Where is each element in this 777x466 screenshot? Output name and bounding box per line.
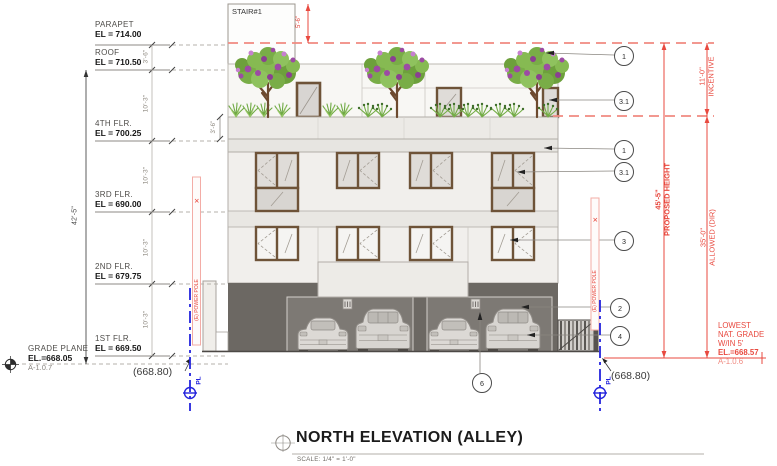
property-line-label-left: PL — [196, 351, 203, 411]
level-label-3rd: 3RD FLR. EL = 690.00 — [95, 190, 141, 209]
grade-plane-label: GRADE PLANE EL.=668.05 A-1.0.7 — [28, 344, 88, 372]
spot-elevation-right: (668.80) — [611, 370, 650, 382]
grade-plane-marker — [2, 356, 19, 373]
level-label-roof: ROOF EL = 710.50 — [95, 48, 141, 67]
callout-3-1: 3.1 — [614, 91, 634, 111]
dim-floor: 10'-3" — [143, 74, 150, 134]
dim-floor: 10'-3" — [143, 290, 150, 350]
overall-dim-text: 42'-5" — [72, 186, 79, 246]
elevation-drawing: PARAPET EL = 714.00 ROOF EL = 710.50 4TH… — [0, 0, 777, 466]
proposed-height-text: 45'-5" PROPOSED HEIGHT — [655, 155, 672, 245]
stair-label: STAIR#1 — [232, 7, 262, 16]
dim-floor: 10'-3" — [143, 218, 150, 278]
spot-elevation-left: (668.80) — [133, 366, 172, 378]
stair-dim-text: 5'-6" — [296, 0, 302, 52]
callout-6: 6 — [472, 373, 492, 393]
fourth-floor-fascia — [228, 139, 558, 152]
terrace-planter-band — [228, 117, 558, 139]
power-pole-label-left: (E) POWER POLE — [194, 265, 200, 335]
level-label-2nd: 2ND FLR. EL = 679.75 — [95, 262, 141, 281]
third-floor-band — [228, 211, 558, 227]
property-line-symbols — [183, 388, 607, 399]
center-bay-projection — [318, 262, 468, 297]
drawing-title: NORTH ELEVATION (ALLEY) — [296, 429, 523, 447]
callout-3-1: 3.1 — [614, 162, 634, 182]
callout-3: 3 — [614, 231, 634, 251]
title-bubble — [271, 434, 295, 452]
site-wall-pilaster — [203, 281, 216, 351]
callout-4: 4 — [610, 326, 630, 346]
allowed-height-text: 35'-0" ALLOWED (DIR) — [700, 193, 717, 283]
drawing-scale: SCALE: 1/4" = 1'-0" — [297, 456, 356, 463]
property-line-label-right: PL — [606, 351, 613, 411]
dim-planter: 3'-6" — [211, 97, 217, 157]
callout-1: 1 — [614, 46, 634, 66]
lowest-grade-note: LOWEST NAT. GRADE W/IN 5' EL.=668.57 A-1… — [718, 321, 764, 366]
level-label-1st: 1ST FLR. EL = 669.50 — [95, 334, 141, 353]
spot-elevation-leaders — [185, 358, 611, 371]
level-label-parapet: PARAPET EL = 714.00 — [95, 20, 141, 39]
power-pole-label-right: (E) POWER POLE — [592, 256, 598, 326]
callout-1: 1 — [614, 140, 634, 160]
callout-2: 2 — [610, 298, 630, 318]
incentive-dim-text: 11'-0" INCENTIVE — [699, 32, 716, 122]
dim-floor: 10'-3" — [143, 146, 150, 206]
level-label-4th: 4TH FLR. EL = 700.25 — [95, 119, 141, 138]
